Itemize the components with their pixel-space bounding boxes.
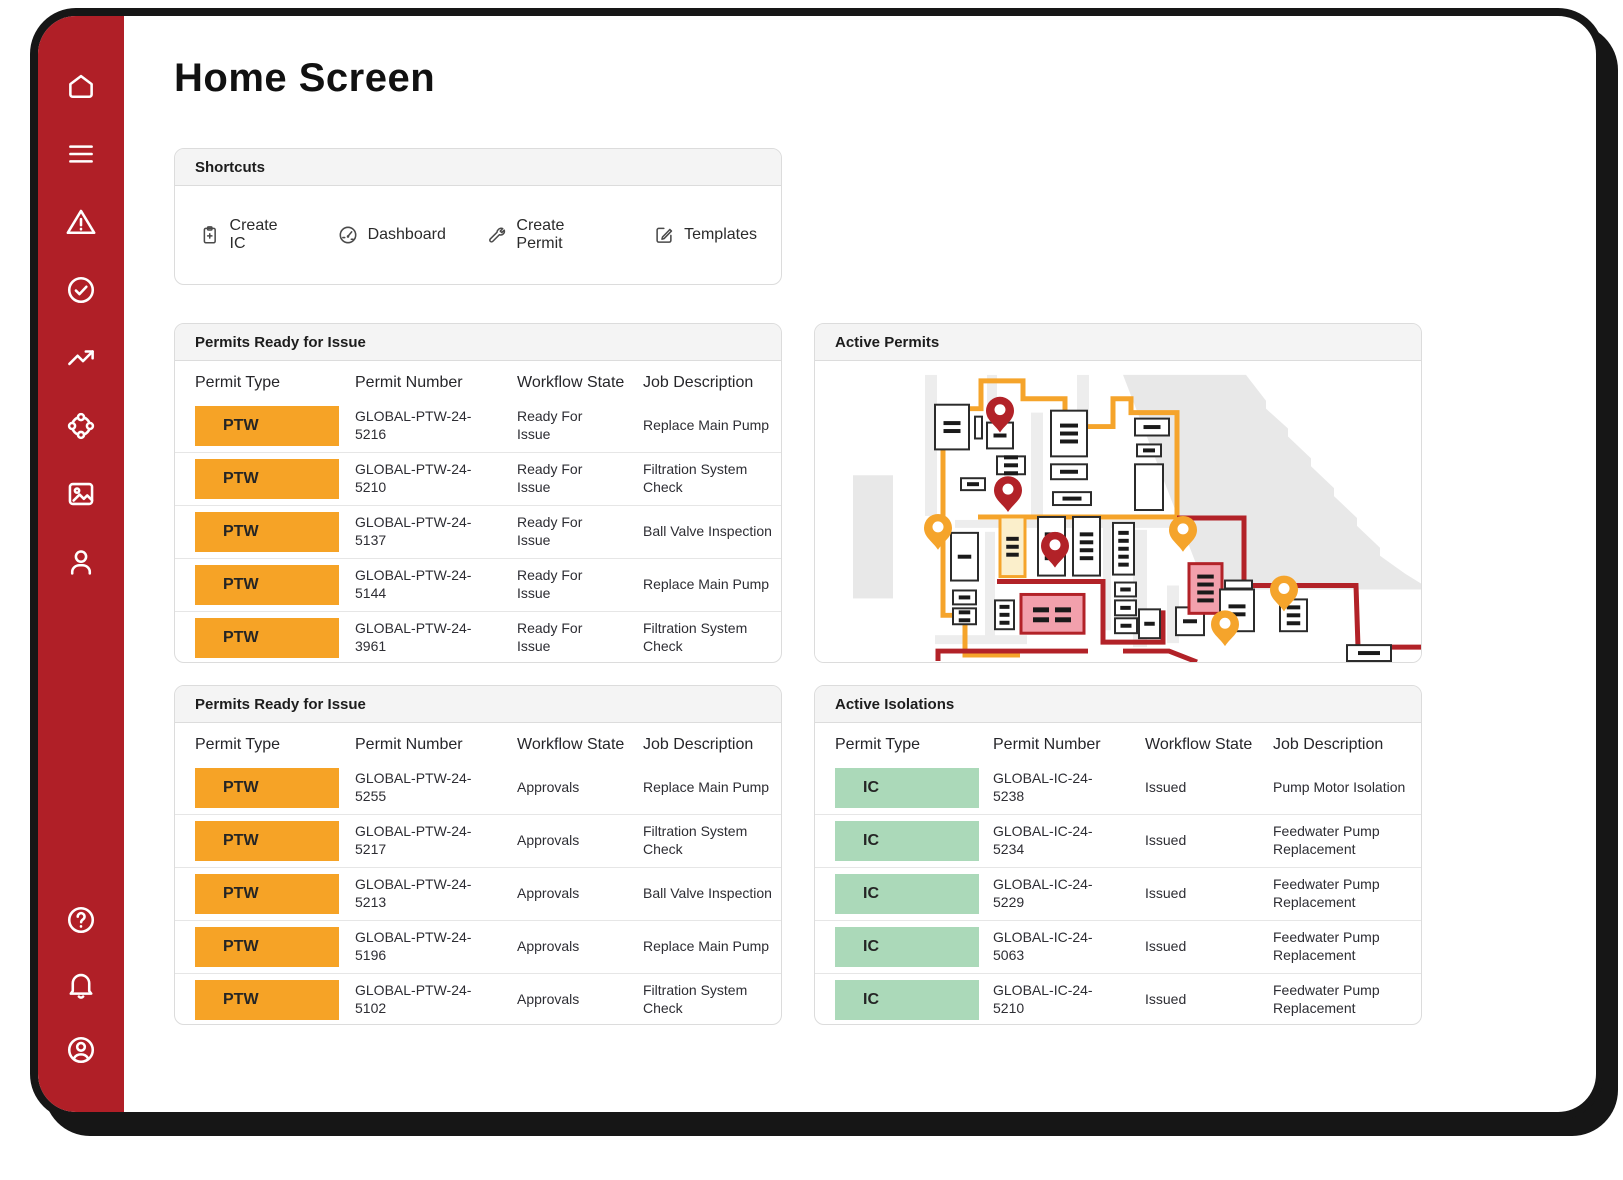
job-description: Feedwater Pump Replacement bbox=[1253, 974, 1421, 1026]
shortcut-label: Dashboard bbox=[368, 226, 446, 244]
bell-icon bbox=[64, 968, 98, 1002]
trending-up-icon bbox=[64, 341, 98, 375]
map-building-marking bbox=[1006, 545, 1019, 549]
sidebar-bottom-group bbox=[63, 902, 99, 1068]
job-description: Pump Motor Isolation bbox=[1253, 762, 1421, 815]
alert-triangle-icon bbox=[64, 205, 98, 239]
map-building-marking bbox=[1121, 624, 1132, 628]
map-building-marking bbox=[1287, 605, 1301, 609]
map-building bbox=[975, 417, 982, 439]
map-building-marking bbox=[1060, 470, 1078, 474]
permit-type-badge: PTW bbox=[195, 874, 339, 914]
map-pin-orange[interactable] bbox=[1211, 610, 1239, 646]
map-building-marking bbox=[1080, 540, 1094, 544]
permit-number: GLOBAL-PTW-24-3961 bbox=[335, 612, 497, 664]
card-title: Permits Ready for Issue bbox=[175, 324, 781, 361]
col-permit-type: Permit Type bbox=[175, 723, 335, 762]
shortcuts-card: Shortcuts Create IC Dashboard Create Per… bbox=[174, 148, 782, 285]
permits-ready-card-2: Permits Ready for Issue Permit Type Perm… bbox=[174, 685, 782, 1025]
map-building-marking bbox=[1120, 606, 1131, 610]
pin-hole bbox=[1220, 618, 1231, 629]
workflow-state: Approvals bbox=[497, 921, 623, 974]
col-permit-number: Permit Number bbox=[335, 361, 497, 400]
account-circle-icon bbox=[64, 1033, 98, 1067]
permit-type-badge: PTW bbox=[195, 406, 339, 446]
workflow-state: Issued bbox=[1125, 815, 1253, 868]
col-permit-type: Permit Type bbox=[175, 361, 335, 400]
table-row[interactable]: PTWGLOBAL-PTW-24-3961Ready For IssueFilt… bbox=[175, 612, 781, 664]
table-row[interactable]: PTWGLOBAL-PTW-24-5210Ready For IssueFilt… bbox=[175, 453, 781, 506]
job-description: Replace Main Pump bbox=[623, 921, 781, 974]
permit-number: GLOBAL-PTW-24-5144 bbox=[335, 559, 497, 612]
map-building bbox=[1073, 517, 1100, 576]
job-description: Feedwater Pump Replacement bbox=[1253, 921, 1421, 974]
map-building-marking bbox=[959, 618, 971, 622]
map-terrain bbox=[1123, 375, 1421, 590]
table-row[interactable]: PTWGLOBAL-PTW-24-5217ApprovalsFiltration… bbox=[175, 815, 781, 868]
table-row[interactable]: PTWGLOBAL-PTW-24-5196ApprovalsReplace Ma… bbox=[175, 921, 781, 974]
shortcut-templates[interactable]: Templates bbox=[653, 224, 757, 246]
sidebar-item-network[interactable] bbox=[63, 408, 99, 444]
map-road bbox=[985, 532, 995, 643]
shortcuts-row: Create IC Dashboard Create Permit Templa… bbox=[175, 186, 781, 284]
map-building-marking bbox=[1229, 604, 1246, 608]
map-building-marking bbox=[1197, 575, 1214, 579]
map-building-marking bbox=[1055, 607, 1071, 612]
permit-boundary-red bbox=[1123, 651, 1197, 662]
permit-number: GLOBAL-PTW-24-5196 bbox=[335, 921, 497, 974]
table-row[interactable]: ICGLOBAL-IC-24-5234IssuedFeedwater Pump … bbox=[815, 815, 1421, 868]
card-title: Active Permits bbox=[815, 324, 1421, 361]
shortcut-create-ic[interactable]: Create IC bbox=[199, 217, 297, 253]
cards-grid: Permits Ready for Issue Permit Type Perm… bbox=[174, 323, 1596, 1025]
table-row[interactable]: PTWGLOBAL-PTW-24-5137Ready For IssueBall… bbox=[175, 506, 781, 559]
map-building-marking bbox=[1118, 555, 1129, 559]
map-building-marking bbox=[944, 421, 961, 425]
workflow-state: Ready For Issue bbox=[497, 453, 623, 506]
table-row[interactable]: ICGLOBAL-IC-24-5210IssuedFeedwater Pump … bbox=[815, 974, 1421, 1026]
map-building-marking bbox=[967, 482, 979, 486]
map-building-marking bbox=[1033, 607, 1049, 612]
table-row[interactable]: ICGLOBAL-IC-24-5238IssuedPump Motor Isol… bbox=[815, 762, 1421, 815]
sidebar-item-account[interactable] bbox=[63, 1032, 99, 1068]
permit-type-badge: IC bbox=[835, 874, 979, 914]
map-building-marking bbox=[1118, 539, 1129, 543]
map-building-marking bbox=[1197, 598, 1214, 602]
active-permits-card: Active Permits bbox=[814, 323, 1422, 663]
map-building bbox=[935, 405, 969, 450]
sidebar-item-analytics[interactable] bbox=[63, 340, 99, 376]
pin-hole bbox=[1279, 583, 1290, 594]
map-building-marking bbox=[1197, 590, 1214, 594]
map-building-marking bbox=[1080, 532, 1094, 536]
image-icon bbox=[64, 477, 98, 511]
permit-type-badge: IC bbox=[835, 980, 979, 1020]
sidebar-item-media[interactable] bbox=[63, 476, 99, 512]
map-building-marking bbox=[1033, 617, 1049, 622]
permit-number: GLOBAL-PTW-24-5255 bbox=[335, 762, 497, 815]
site-map[interactable] bbox=[815, 361, 1421, 662]
permit-type-badge: IC bbox=[835, 821, 979, 861]
permits-ready-table-2: Permit Type Permit Number Workflow State… bbox=[175, 723, 781, 1025]
sidebar-item-menu[interactable] bbox=[63, 136, 99, 172]
map-building-marking bbox=[1060, 432, 1078, 436]
map-building-marking bbox=[1358, 651, 1380, 655]
shortcut-label: Create Permit bbox=[516, 217, 613, 253]
shortcut-dashboard[interactable]: Dashboard bbox=[337, 224, 446, 246]
col-workflow-state: Workflow State bbox=[497, 723, 623, 762]
map-road bbox=[1031, 413, 1043, 516]
job-description: Filtration System Check bbox=[623, 815, 781, 868]
permit-number: GLOBAL-PTW-24-5217 bbox=[335, 815, 497, 868]
col-workflow-state: Workflow State bbox=[1125, 723, 1253, 762]
table-row[interactable]: PTWGLOBAL-PTW-24-5255ApprovalsReplace Ma… bbox=[175, 762, 781, 815]
workflow-state: Issued bbox=[1125, 762, 1253, 815]
sidebar bbox=[38, 16, 124, 1112]
permit-type-badge: IC bbox=[835, 768, 979, 808]
map-road bbox=[955, 520, 1183, 528]
permit-type-badge: PTW bbox=[195, 821, 339, 861]
permit-number: GLOBAL-IC-24-5229 bbox=[973, 868, 1125, 921]
job-description: Feedwater Pump Replacement bbox=[1253, 815, 1421, 868]
map-building-marking bbox=[1287, 613, 1301, 617]
col-job-description: Job Description bbox=[623, 361, 781, 400]
permit-number: GLOBAL-PTW-24-5137 bbox=[335, 506, 497, 559]
map-building-marking bbox=[1063, 497, 1082, 501]
map-building-marking bbox=[1004, 463, 1018, 467]
shortcut-label: Templates bbox=[684, 226, 757, 244]
help-circle-icon bbox=[64, 903, 98, 937]
check-circle-icon bbox=[64, 273, 98, 307]
job-description: Feedwater Pump Replacement bbox=[1253, 868, 1421, 921]
workflow-state: Ready For Issue bbox=[497, 612, 623, 664]
workflow-state: Issued bbox=[1125, 868, 1253, 921]
permit-type-badge: PTW bbox=[195, 459, 339, 499]
col-job-description: Job Description bbox=[623, 723, 781, 762]
map-building-marking bbox=[1183, 619, 1197, 623]
pin-hole bbox=[1178, 523, 1189, 534]
map-terrain bbox=[853, 475, 893, 598]
map-building-marking bbox=[959, 595, 971, 599]
col-permit-number: Permit Number bbox=[973, 723, 1125, 762]
map-building-marking bbox=[1055, 617, 1071, 622]
permit-type-badge: PTW bbox=[195, 927, 339, 967]
sidebar-item-users[interactable] bbox=[63, 544, 99, 580]
workflow-state: Approvals bbox=[497, 868, 623, 921]
card-title: Permits Ready for Issue bbox=[175, 686, 781, 723]
job-description: Ball Valve Inspection bbox=[623, 868, 781, 921]
map-building-marking bbox=[1144, 425, 1161, 429]
pin-hole bbox=[933, 521, 944, 532]
card-title: Active Isolations bbox=[815, 686, 1421, 723]
workflow-state: Approvals bbox=[497, 762, 623, 815]
table-row[interactable]: ICGLOBAL-IC-24-5229IssuedFeedwater Pump … bbox=[815, 868, 1421, 921]
map-building-marking bbox=[1144, 622, 1155, 626]
workflow-state: Approvals bbox=[497, 974, 623, 1026]
workflow-state: Issued bbox=[1125, 974, 1253, 1026]
workflow-state: Issued bbox=[1125, 921, 1253, 974]
permit-number: GLOBAL-PTW-24-5216 bbox=[335, 400, 497, 453]
workflow-state: Ready For Issue bbox=[497, 400, 623, 453]
map-building-marking bbox=[1000, 605, 1010, 609]
table-row[interactable]: PTWGLOBAL-PTW-24-5213ApprovalsBall Valve… bbox=[175, 868, 781, 921]
map-pin-orange[interactable] bbox=[924, 514, 952, 550]
shortcut-create-permit[interactable]: Create Permit bbox=[486, 217, 613, 253]
sidebar-item-home[interactable] bbox=[63, 68, 99, 104]
map-building-highlighted bbox=[1021, 594, 1084, 633]
map-building-marking bbox=[1006, 553, 1019, 557]
sidebar-item-alerts[interactable] bbox=[63, 204, 99, 240]
pin-hole bbox=[1003, 484, 1014, 495]
main-content: Home Screen Shortcuts Create IC Dashboar… bbox=[124, 16, 1596, 1112]
sidebar-top-group bbox=[63, 68, 99, 580]
map-building-marking bbox=[1004, 471, 1018, 475]
permit-type-badge: PTW bbox=[195, 565, 339, 605]
pin-hole bbox=[1050, 539, 1061, 550]
workflow-state: Ready For Issue bbox=[497, 506, 623, 559]
map-building-marking bbox=[1287, 621, 1301, 625]
job-description: Replace Main Pump bbox=[623, 559, 781, 612]
map-building-marking bbox=[994, 434, 1007, 438]
map-building-marking bbox=[1080, 556, 1094, 560]
permit-type-badge: PTW bbox=[195, 512, 339, 552]
job-description: Ball Valve Inspection bbox=[623, 506, 781, 559]
permit-type-badge: PTW bbox=[195, 768, 339, 808]
pin-hole bbox=[995, 404, 1006, 415]
device-frame: Home Screen Shortcuts Create IC Dashboar… bbox=[30, 8, 1604, 1120]
map-road bbox=[935, 635, 1027, 644]
map-building-marking bbox=[959, 610, 971, 614]
map-building-highlighted bbox=[1189, 564, 1222, 614]
hub-icon bbox=[64, 409, 98, 443]
workflow-state: Approvals bbox=[497, 815, 623, 868]
map-building-marking bbox=[1197, 583, 1214, 587]
col-job-description: Job Description bbox=[1253, 723, 1421, 762]
map-building-marking bbox=[958, 555, 972, 559]
page-title: Home Screen bbox=[174, 58, 1596, 98]
col-permit-number: Permit Number bbox=[335, 723, 497, 762]
gauge-icon bbox=[337, 224, 359, 246]
job-description: Replace Main Pump bbox=[623, 400, 781, 453]
permit-number: GLOBAL-IC-24-5238 bbox=[973, 762, 1125, 815]
table-row[interactable]: PTWGLOBAL-PTW-24-5144Ready For IssueRepl… bbox=[175, 559, 781, 612]
map-building-marking bbox=[944, 429, 961, 433]
active-isolations-table: Permit Type Permit Number Workflow State… bbox=[815, 723, 1421, 1025]
permit-type-badge: PTW bbox=[195, 618, 339, 658]
active-isolations-card: Active Isolations Permit Type Permit Num… bbox=[814, 685, 1422, 1025]
map-building-marking bbox=[1004, 455, 1018, 459]
map-building-marking bbox=[1118, 563, 1129, 567]
permit-number: GLOBAL-PTW-24-5210 bbox=[335, 453, 497, 506]
permit-type-badge: IC bbox=[835, 927, 979, 967]
map-building-marking bbox=[1060, 424, 1078, 428]
home-icon bbox=[64, 69, 98, 103]
map-building-marking bbox=[1118, 547, 1129, 551]
table-row[interactable]: ICGLOBAL-IC-24-5063IssuedFeedwater Pump … bbox=[815, 921, 1421, 974]
permit-number: GLOBAL-IC-24-5063 bbox=[973, 921, 1125, 974]
job-description: Filtration System Check bbox=[623, 612, 781, 664]
permit-type-badge: PTW bbox=[195, 980, 339, 1020]
col-permit-type: Permit Type bbox=[815, 723, 973, 762]
edit-square-icon bbox=[653, 224, 675, 246]
permits-ready-table-1: Permit Type Permit Number Workflow State… bbox=[175, 361, 781, 663]
map-building-marking bbox=[1120, 587, 1131, 591]
shortcut-label: Create IC bbox=[230, 217, 297, 253]
map-building-marking bbox=[1143, 448, 1155, 452]
sidebar-item-help[interactable] bbox=[63, 902, 99, 938]
workflow-state: Ready For Issue bbox=[497, 559, 623, 612]
wrench-icon bbox=[486, 224, 508, 246]
permit-number: GLOBAL-PTW-24-5213 bbox=[335, 868, 497, 921]
map-building-marking bbox=[1080, 548, 1094, 552]
menu-icon bbox=[64, 137, 98, 171]
user-icon bbox=[64, 545, 98, 579]
sidebar-item-notifications[interactable] bbox=[63, 967, 99, 1003]
shortcuts-card-title: Shortcuts bbox=[175, 149, 781, 186]
map-building-marking bbox=[1006, 537, 1019, 541]
col-workflow-state: Workflow State bbox=[497, 361, 623, 400]
permit-number: GLOBAL-IC-24-5210 bbox=[973, 974, 1125, 1026]
map-building-marking bbox=[1000, 621, 1010, 625]
sidebar-item-tasks[interactable] bbox=[63, 272, 99, 308]
map-building bbox=[1135, 464, 1163, 510]
table-row[interactable]: PTWGLOBAL-PTW-24-5102ApprovalsFiltration… bbox=[175, 974, 781, 1026]
map-pin-red[interactable] bbox=[994, 476, 1022, 512]
map-building-marking bbox=[1118, 531, 1129, 535]
map-building-marking bbox=[1060, 439, 1078, 443]
permits-ready-card-1: Permits Ready for Issue Permit Type Perm… bbox=[174, 323, 782, 663]
clipboard-plus-icon bbox=[199, 224, 221, 246]
permit-number: GLOBAL-PTW-24-5102 bbox=[335, 974, 497, 1026]
table-row[interactable]: PTWGLOBAL-PTW-24-5216Ready For IssueRepl… bbox=[175, 400, 781, 453]
job-description: Filtration System Check bbox=[623, 453, 781, 506]
job-description: Filtration System Check bbox=[623, 974, 781, 1026]
job-description: Replace Main Pump bbox=[623, 762, 781, 815]
map-building bbox=[1225, 581, 1252, 589]
permit-number: GLOBAL-IC-24-5234 bbox=[973, 815, 1125, 868]
map-building-marking bbox=[1000, 613, 1010, 617]
app-screen: Home Screen Shortcuts Create IC Dashboar… bbox=[38, 16, 1596, 1112]
